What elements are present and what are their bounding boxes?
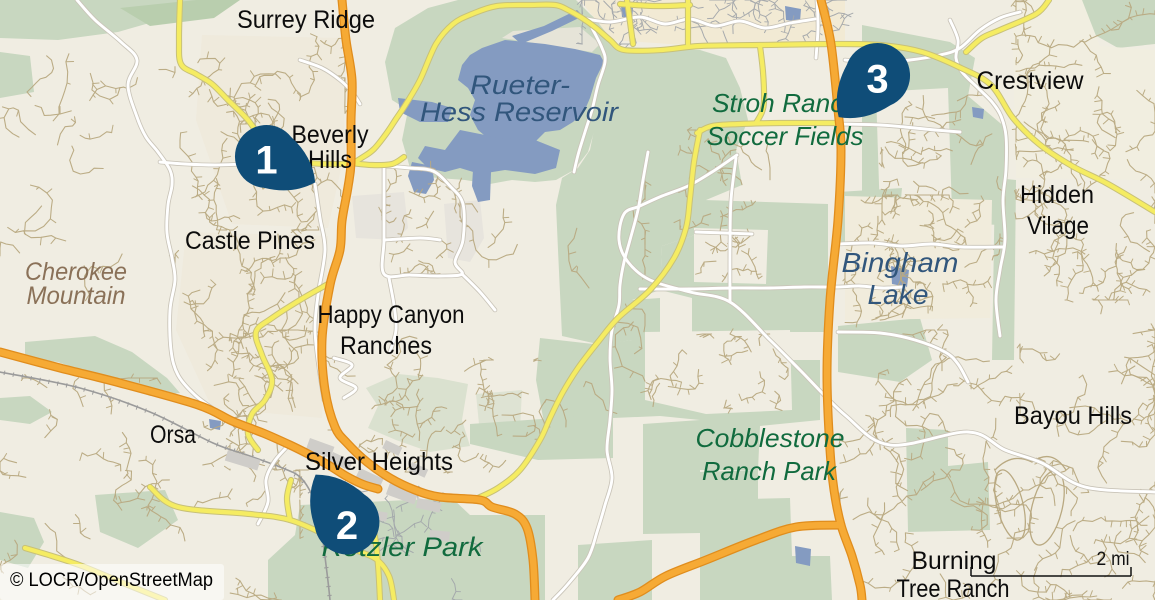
- svg-text:Bingham: Bingham: [842, 247, 959, 278]
- svg-text:Vilage: Vilage: [1027, 212, 1089, 240]
- svg-text:Surrey Ridge: Surrey Ridge: [237, 6, 375, 34]
- svg-text:Soccer Fields: Soccer Fields: [707, 121, 864, 151]
- svg-text:Ranches: Ranches: [340, 332, 432, 360]
- svg-text:Hidden: Hidden: [1020, 181, 1094, 209]
- svg-text:Burning: Burning: [912, 547, 997, 575]
- svg-text:Rueter-: Rueter-: [470, 70, 570, 100]
- svg-text:Ranch Park: Ranch Park: [702, 456, 838, 486]
- svg-text:Hills: Hills: [308, 146, 352, 174]
- svg-text:Silver Heights: Silver Heights: [305, 448, 453, 476]
- svg-text:Bayou Hills: Bayou Hills: [1014, 402, 1132, 430]
- svg-text:Stroh Ranch: Stroh Ranch: [712, 88, 858, 118]
- svg-text:Cobblestone: Cobblestone: [696, 423, 845, 453]
- svg-text:Orsa: Orsa: [150, 421, 196, 449]
- svg-text:2: 2: [336, 504, 358, 548]
- svg-text:Beverly: Beverly: [292, 121, 369, 149]
- svg-text:1: 1: [255, 139, 277, 183]
- svg-text:Tree Ranch: Tree Ranch: [897, 575, 1010, 600]
- svg-text:Hess Reservoir: Hess Reservoir: [420, 97, 619, 127]
- svg-text:3: 3: [866, 58, 888, 102]
- svg-text:Mountain: Mountain: [27, 282, 126, 310]
- svg-text:2 mi: 2 mi: [1097, 549, 1130, 570]
- svg-text:Castle Pines: Castle Pines: [185, 227, 315, 255]
- svg-text:Happy Canyon: Happy Canyon: [318, 301, 465, 329]
- svg-text:Crestview: Crestview: [977, 67, 1085, 95]
- svg-text:© LOCR/OpenStreetMap: © LOCR/OpenStreetMap: [10, 570, 213, 591]
- svg-text:Lake: Lake: [868, 279, 929, 310]
